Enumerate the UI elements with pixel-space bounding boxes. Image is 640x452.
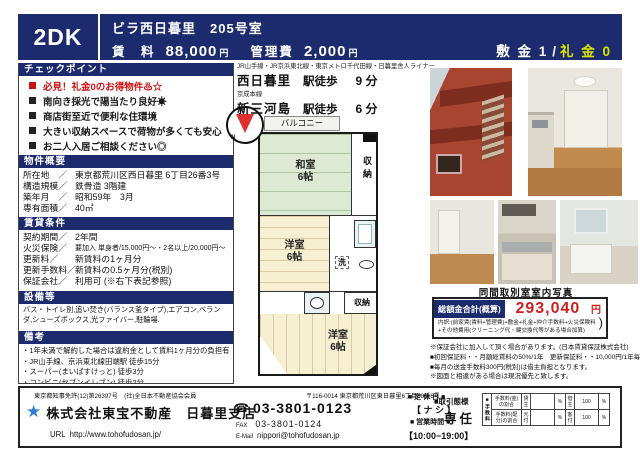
overview-row: 築年月 ／ 昭和59年 3月 [19, 192, 233, 203]
balcony-label: バルコニー [264, 116, 340, 131]
closing-paren: ) [599, 319, 603, 327]
station-row: 新三河島 駅徒歩 6 分 [237, 98, 477, 117]
field-value: 鉄骨造 3階建 [75, 181, 229, 192]
counter-top-shape [502, 242, 552, 252]
company-url: http://www.tohofudosan.jp/ [70, 430, 161, 439]
bullet-square-icon [29, 82, 36, 89]
mgmt-fee-label: 管理費 [250, 41, 294, 60]
deal-type-value: 専任 [444, 408, 475, 427]
deposit-keymoney-slash: / [552, 44, 556, 59]
japanese-room: 和室 6帖 [260, 134, 352, 216]
footer-agency-box: 東京都知事免許(12)第26397号 (社)全日本不動産協会会員 ★ 株式会社東… [18, 386, 622, 448]
photo-kitchen [498, 200, 556, 284]
equipment-text: バス・トイレ別,追い焚き(バランス釜タイプ),エアコン,ベランダ,シューズボック… [19, 304, 233, 325]
door-shape [438, 210, 460, 254]
field-label: 専有面積／ [23, 203, 75, 214]
section-lease-title: 賃貸条件 [19, 217, 233, 230]
left-column: チェックポイント 必見！礼金0のお得物件♨☆ 南向き採光で陽当たり良好☀ 商店街… [18, 63, 234, 384]
field-label: 保証会社／ [23, 276, 75, 287]
checkpoint-text: 必見！礼金0のお得物件♨☆ [43, 79, 162, 93]
guarantee-notes: ※保証会社に加入して頂く場合があります。(日本賃貸保証株式会社) ■初回保証料・… [430, 343, 640, 382]
rail-lines-1: JR山手線・JR京浜東北線・東京メトロ千代田線・日暮里舎人ライナー [237, 61, 477, 70]
checkpoint-item: 商店街至近で便利な住環境 [19, 108, 233, 123]
total-cost-unit: 円 [591, 301, 606, 316]
guarantee-note: ※保証会社に加入して頂く場合があります。(日本賃貸保証株式会社) [430, 343, 640, 353]
remark-line: ・スーパー(まいばすけっと) 徒歩3分 [19, 367, 233, 378]
window-shape [436, 154, 462, 174]
commission-row-name: 手数料(配分)の割合 [492, 410, 522, 426]
rent-value: 88,000 [166, 43, 218, 60]
commission-value [531, 394, 555, 410]
field-value: 40㎡ [75, 203, 229, 214]
commission-party: 元付 [522, 410, 531, 426]
bullet-square-icon [29, 142, 36, 149]
photo-dining-kitchen [528, 68, 622, 196]
remark-line: ・1年未満で解約した場合は違約金として賃料1ヶ月分の負担有 [19, 346, 233, 357]
remark-line: ・JR山手線、京浜東北線田端駅 徒歩15分 [19, 357, 233, 368]
checkpoint-text: 南向き採光で陽当たり良好☀ [43, 94, 167, 108]
kitchen-sink-shape [532, 120, 548, 128]
checkpoint-text: お二人入居ご相談ください◎ [43, 139, 167, 153]
stair-shape [482, 94, 504, 161]
sink-icon [359, 260, 374, 269]
guarantee-note: ※図面と相違がある場合は現況優先と致します。 [430, 372, 640, 382]
floor-plan: バルコニー 和室 6帖 収納 洋室 6帖 [258, 116, 382, 378]
property-title: ビラ西日暮里 205号室 [112, 18, 612, 37]
section-overview-title: 物件概要 [19, 155, 233, 168]
closet-bottom: 収納 [344, 292, 378, 314]
room-label: 和室 6帖 [260, 160, 351, 184]
company-row: ★ 株式会社東宝不動産 日暮里支店 [26, 402, 256, 422]
sliding-door-shape [564, 90, 608, 148]
overview-row: 専有面積／ 40㎡ [19, 203, 233, 214]
header-bar: 2DK ビラ西日暮里 205号室 賃 料 88,000 円 管理費 2,000 … [18, 14, 622, 60]
overview-row: 所在地 ／ 東京都荒川区西日暮里 6丁目26番3号 [19, 170, 233, 181]
mgmt-fee-unit: 円 [348, 46, 357, 59]
field-value: 要加入 単身者/15,000円〜・2名以上/20,000円〜 [75, 243, 229, 254]
lease-row: 更新料／ 新賃料の1ヶ月分 [19, 254, 233, 265]
washroom-area: 洗 [330, 216, 378, 292]
email-label: E-Mail [236, 434, 253, 440]
mgmt-fee-value: 2,000 [304, 43, 347, 60]
western-room-bottom: 洋室 6帖 [260, 314, 378, 376]
deposit-value: 敷 金 1 [496, 40, 548, 60]
phone-number: 03-3801-0123 [253, 400, 352, 416]
station-name: 西日暮里 [237, 70, 291, 89]
price-line: 賃 料 88,000 円 管理費 2,000 円 敷 金 1 / 礼 金 0 [112, 40, 612, 60]
walk-minutes: 6 分 [356, 100, 378, 117]
commission-value: 100 [575, 394, 599, 410]
section-remarks-title: 備考 [19, 331, 233, 344]
closet-right: 収納 [352, 138, 378, 216]
walk-minutes: 9 分 [356, 72, 378, 89]
commission-table-header: ■手数料 [483, 394, 492, 426]
laundry-label: 洗 [335, 256, 349, 269]
rent-unit: 円 [219, 46, 228, 59]
walk-label: 駅徒歩 [303, 101, 338, 117]
phone-icon: ☎ [234, 401, 249, 415]
phone-row: ☎ 03-3801-0123 [234, 400, 352, 416]
rail-lines-2: 京成本線 [237, 89, 477, 98]
fax-row: FAX03-3801-0124 [236, 419, 322, 429]
field-value: 利用可 (※右下表記参照) [75, 276, 229, 287]
field-label: 構造規模／ [23, 181, 75, 192]
vanity-shape [570, 244, 612, 274]
deal-type-label: ■取引態様 [434, 396, 469, 407]
url-label: URL [50, 430, 66, 439]
company-name: 株式会社東宝不動産 日暮里支店 [46, 403, 256, 422]
cabinet-shape [502, 254, 552, 280]
email-address: nippori@tohofudosan.jp [257, 431, 339, 440]
checkpoint-item: お二人入居ご相談ください◎ [19, 138, 233, 153]
field-value: 新賃料の1ヶ月分 [75, 254, 229, 265]
commission-unit: % [555, 410, 566, 426]
guarantee-note: ■初回保証料・・月額総賃料の50%/1年 更新保証料・・10,000円/1年毎 [430, 353, 640, 363]
room-label: 洋室 6帖 [260, 240, 329, 264]
photo-washroom [560, 200, 638, 284]
bullet-square-icon [29, 97, 36, 104]
field-label: 築年月 ／ [23, 192, 75, 203]
diagonal-wall [260, 336, 290, 376]
range-hood-shape [502, 204, 536, 216]
total-cost-box: 総額金合計(概算) 293,040 円 内訳:(前家賃(賃料+管理費)+敷金+礼… [432, 297, 608, 339]
header-main: ビラ西日暮里 205号室 賃 料 88,000 円 管理費 2,000 円 敷 … [100, 14, 622, 60]
commission-value [531, 410, 555, 426]
commission-party: 借主 [566, 394, 575, 410]
commission-party: 客付 [566, 410, 575, 426]
field-value: 2年間 [75, 232, 229, 243]
checkpoint-text: 商店街至近で便利な住環境 [43, 109, 157, 123]
field-value: 昭和59年 3月 [75, 192, 229, 203]
ceiling-light-shape [574, 76, 596, 87]
section-equipment-title: 設備等 [19, 291, 233, 304]
key-money-value: 礼 金 0 [560, 40, 612, 60]
commission-row: ■手数料 手数料(金)の割合 貸主 % 借主 100 % [483, 394, 610, 410]
field-label: 更新料／ [23, 254, 75, 265]
field-value: 東京都荒川区西日暮里 6丁目26番3号 [75, 170, 229, 181]
wall-corner [363, 134, 376, 142]
floor-plan-frame: 和室 6帖 収納 洋室 6帖 洗 [258, 132, 378, 376]
commission-party: 貸主 [522, 394, 531, 410]
star-icon: ★ [26, 402, 41, 422]
commission-unit: % [555, 394, 566, 410]
checkpoint-item: 南向き採光で陽当たり良好☀ [19, 93, 233, 108]
field-value: 新賃料の0.5ヶ月分(税別) [75, 265, 229, 276]
western-room-middle: 洋室 6帖 [260, 216, 330, 292]
station-row: 西日暮里 駅徒歩 9 分 [237, 70, 477, 89]
hours-value: 【10:00−19:00】 [404, 429, 473, 442]
compass-n-label: N [231, 135, 235, 141]
commission-unit: % [599, 410, 610, 426]
overview-row: 構造規模／ 鉄骨造 3階建 [19, 181, 233, 192]
guarantee-note: ■毎月の送金手数料300円(税別)は借主負担となります。 [430, 363, 640, 373]
checkpoint-text: 大きい収納スペースで荷物が多くても安心 [43, 124, 222, 138]
lease-row: 更新手数料／ 新賃料の0.5ヶ月分(税別) [19, 265, 233, 276]
checkpoint-item: 大きい収納スペースで荷物が多くても安心 [19, 123, 233, 138]
rental-listing-flyer: 2DK ビラ西日暮里 205号室 賃 料 88,000 円 管理費 2,000 … [0, 0, 640, 452]
closet-label: 収納 [361, 156, 374, 182]
fax-label: FAX [236, 423, 247, 429]
commission-row: 手数料(配分)の割合 元付 % 客付 100 % [483, 410, 610, 426]
total-cost-label: 総額金合計(概算) [434, 300, 505, 318]
mirror-shape [574, 208, 608, 234]
field-label: 火災保険／ [23, 243, 75, 254]
field-label: 更新手数料／ [23, 265, 75, 276]
rent-label: 賃 料 [112, 41, 156, 60]
room-label: 洋室 6帖 [278, 330, 378, 354]
commission-unit: % [599, 394, 610, 410]
total-cost-row: 総額金合計(概算) 293,040 円 [434, 299, 606, 318]
field-label: 契約期間／ [23, 232, 75, 243]
washing-machine-drum [358, 224, 372, 244]
total-cost-value: 293,040 [505, 300, 591, 318]
commission-row-name: 手数料(金)の割合 [492, 394, 522, 410]
lease-row: 火災保険／ 要加入 単身者/15,000円〜・2名以上/20,000円〜 [19, 243, 233, 254]
total-cost-breakdown: 内訳:(前家賃(賃料+管理費)+敷金+礼金+仲介手数料+火災保険料 +その他費用… [434, 318, 606, 335]
entrance-corner [358, 362, 378, 376]
section-checkpoints-title: チェックポイント [19, 63, 233, 76]
email-row: E-Mailnippori@tohofudosan.jp [236, 431, 340, 440]
station-name: 新三河島 [237, 98, 291, 117]
layout-type: 2DK [18, 14, 100, 60]
field-label: 所在地 ／ [23, 170, 75, 181]
lease-row: 契約期間／ 2年間 [19, 232, 233, 243]
lease-row: 保証会社／ 利用可 (※右下表記参照) [19, 276, 233, 287]
company-url-row: URLhttp://www.tohofudosan.jp/ [50, 430, 161, 439]
checkpoint-item: 必見！礼金0のお得物件♨☆ [19, 78, 233, 93]
fax-number: 03-3801-0124 [255, 419, 322, 429]
washing-machine-icon [354, 220, 376, 248]
walk-label: 駅徒歩 [303, 73, 338, 89]
bullet-square-icon [29, 127, 36, 134]
train-access: JR山手線・JR京浜東北線・東京メトロ千代田線・日暮里舎人ライナー 西日暮里 駅… [237, 61, 477, 117]
bullet-square-icon [29, 112, 36, 119]
toilet-icon [310, 297, 324, 309]
photo-room-interior [430, 200, 494, 284]
remark-line: ・コンビニ(セブンイレブン) 徒歩2分 [19, 378, 233, 385]
commission-value: 100 [575, 410, 599, 426]
toilet-room [304, 292, 330, 314]
commission-table: ■手数料 手数料(金)の割合 貸主 % 借主 100 % 手数料(配分)の割合 … [482, 393, 610, 426]
license-text: 東京都知事免許(12)第26397号 (社)全日本不動産協会会員 [34, 391, 196, 400]
